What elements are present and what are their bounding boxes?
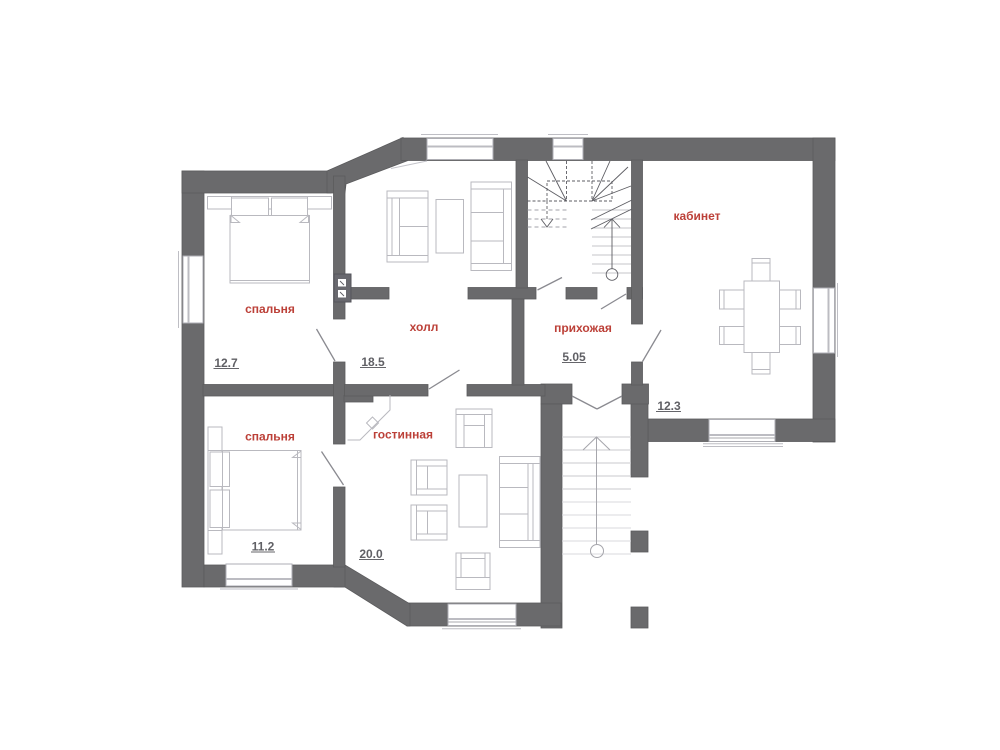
svg-text:12.7: 12.7 xyxy=(214,356,238,370)
svg-text:холл: холл xyxy=(410,320,439,334)
svg-text:прихожая: прихожая xyxy=(554,321,612,335)
svg-text:18.5: 18.5 xyxy=(361,355,385,369)
svg-text:11.2: 11.2 xyxy=(252,540,275,554)
svg-text:спальня: спальня xyxy=(245,302,295,316)
svg-text:кабинет: кабинет xyxy=(673,209,720,223)
svg-text:гостинная: гостинная xyxy=(373,428,433,442)
svg-text:спальня: спальня xyxy=(245,430,295,444)
svg-text:20.0: 20.0 xyxy=(359,547,383,561)
svg-text:5.05: 5.05 xyxy=(562,350,586,364)
svg-text:12.3: 12.3 xyxy=(657,399,681,413)
